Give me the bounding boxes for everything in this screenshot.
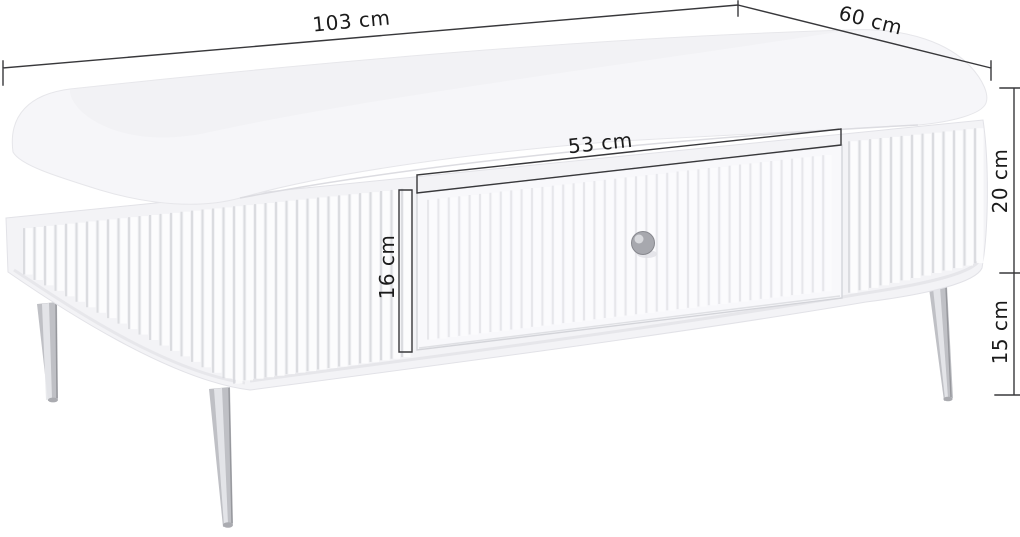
dim-width-label: 103 cm [311, 5, 391, 36]
table-leg-back-left [37, 302, 58, 402]
dim-body-height: 20 cm [988, 88, 1020, 273]
table-leg-front-left [209, 387, 233, 528]
product-dimension-image: 103 cm 60 cm 20 cm 15 cm 53 cm 16 cm [0, 0, 1020, 537]
dim-drawer-height-label: 16 cm [375, 235, 399, 300]
dimension-diagram: 103 cm 60 cm 20 cm 15 cm 53 cm 16 cm [0, 0, 1020, 537]
dim-leg-height-label: 15 cm [988, 300, 1012, 365]
table-leg-front-right [929, 286, 953, 401]
dim-body-height-label: 20 cm [988, 149, 1012, 214]
dim-leg-height: 15 cm [988, 273, 1020, 395]
